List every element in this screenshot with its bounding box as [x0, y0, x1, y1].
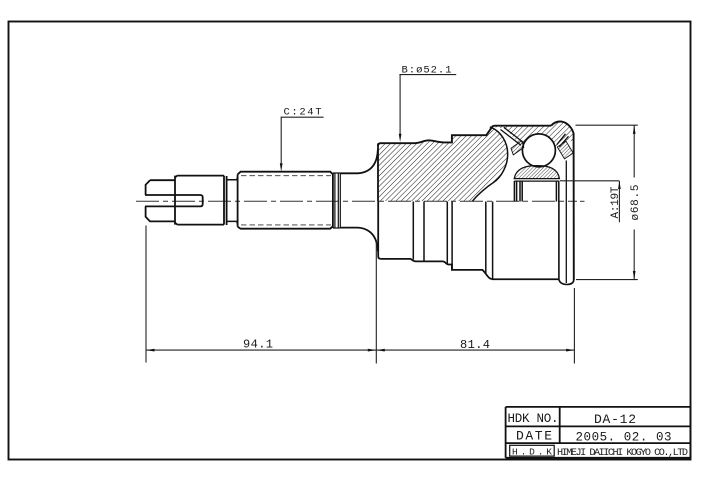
svg-text:DA-12: DA-12: [594, 412, 636, 427]
svg-text:2005. 02. 03: 2005. 02. 03: [576, 431, 672, 445]
svg-text:ø68.5: ø68.5: [630, 185, 642, 221]
svg-text:HIMEJI DAIICHI KOGYO CO.,LTD: HIMEJI DAIICHI KOGYO CO.,LTD: [557, 448, 688, 459]
svg-text:A:19T: A:19T: [610, 186, 622, 218]
svg-text:94.1: 94.1: [243, 338, 273, 352]
svg-text:HDK NO.: HDK NO.: [508, 412, 559, 426]
svg-text:81.4: 81.4: [460, 338, 490, 352]
svg-text:DATE: DATE: [516, 429, 552, 444]
